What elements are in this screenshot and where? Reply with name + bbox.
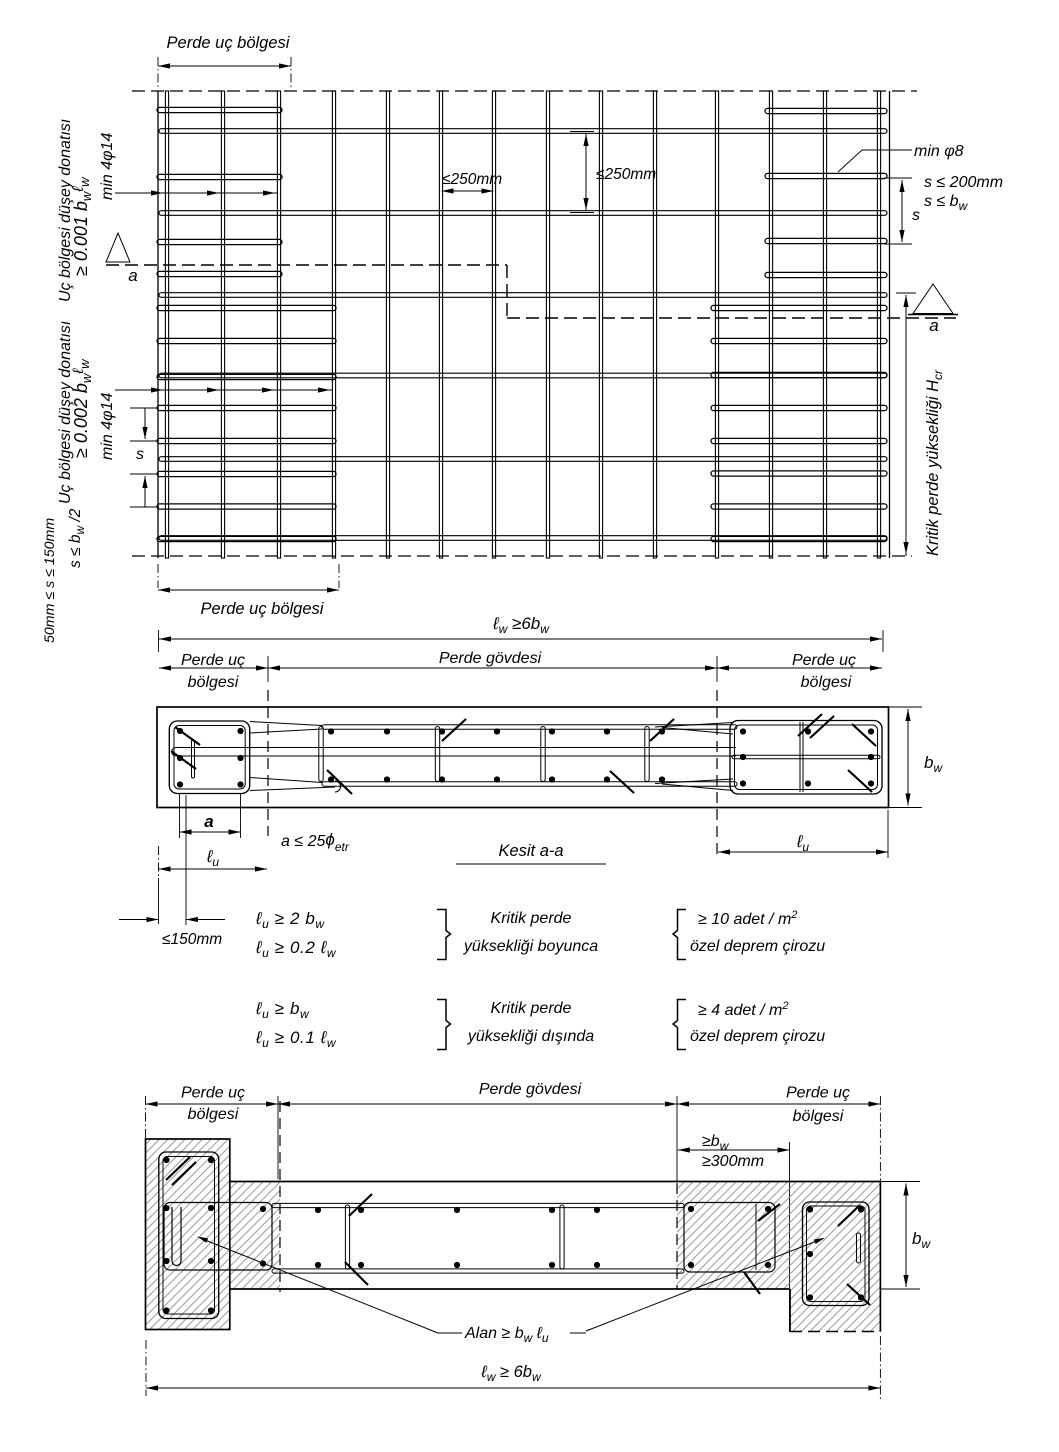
svg-text:s: s <box>912 207 920 224</box>
svg-text:≤250mm: ≤250mm <box>442 171 502 188</box>
svg-text:Kesit a-a: Kesit a-a <box>498 842 563 860</box>
svg-text:≤150mm: ≤150mm <box>162 931 222 948</box>
svg-text:Perde uç bölgesi: Perde uç bölgesi <box>201 600 325 618</box>
svg-text:Perde uç: Perde uç <box>181 1085 245 1102</box>
svg-text:min 4φ14: min 4φ14 <box>99 393 116 460</box>
svg-text:≥300mm: ≥300mm <box>702 1153 764 1170</box>
svg-text:Kritik perde: Kritik perde <box>491 910 572 927</box>
svg-text:Perde uç: Perde uç <box>786 1085 850 1102</box>
svg-text:bölgesi: bölgesi <box>801 674 852 691</box>
svg-text:Perde uç bölgesi: Perde uç bölgesi <box>167 34 291 52</box>
svg-text:50mm ≤ s ≤ 150mm: 50mm ≤ s ≤ 150mm <box>42 518 58 643</box>
svg-text:≤250mm: ≤250mm <box>596 166 656 183</box>
svg-text:bölgesi: bölgesi <box>793 1108 844 1125</box>
svg-text:≥ 10 adet / m2: ≥ 10 adet / m2 <box>698 909 797 928</box>
svg-text:a: a <box>204 812 213 831</box>
svg-text:yüksekliği dışında: yüksekliği dışında <box>467 1028 594 1045</box>
svg-text:≥ 4 adet / m2: ≥ 4 adet / m2 <box>698 1000 789 1019</box>
svg-text:s ≤ 200mm: s ≤ 200mm <box>924 174 1003 191</box>
svg-text:Kritik perde: Kritik perde <box>491 1000 572 1017</box>
svg-text:Perde gövdesi: Perde gövdesi <box>439 650 542 667</box>
svg-text:yüksekliği boyunca: yüksekliği boyunca <box>463 938 598 955</box>
svg-text:min 4φ14: min 4φ14 <box>99 133 116 200</box>
svg-text:bölgesi: bölgesi <box>188 674 239 691</box>
svg-text:a: a <box>128 266 137 285</box>
svg-text:s: s <box>136 446 144 463</box>
svg-text:Perde uç: Perde uç <box>792 652 856 669</box>
svg-text:Kritik perde yüksekliği Hcr: Kritik perde yüksekliği Hcr <box>924 369 945 556</box>
svg-text:min φ8: min φ8 <box>914 143 964 160</box>
svg-text:a: a <box>929 316 938 335</box>
svg-text:Perde gövdesi: Perde gövdesi <box>479 1081 582 1098</box>
svg-text:Perde uç: Perde uç <box>181 652 245 669</box>
svg-text:özel deprem çirozu: özel deprem çirozu <box>690 1028 825 1045</box>
svg-text:özel deprem çirozu: özel deprem çirozu <box>690 938 825 955</box>
svg-text:bölgesi: bölgesi <box>188 1106 239 1123</box>
